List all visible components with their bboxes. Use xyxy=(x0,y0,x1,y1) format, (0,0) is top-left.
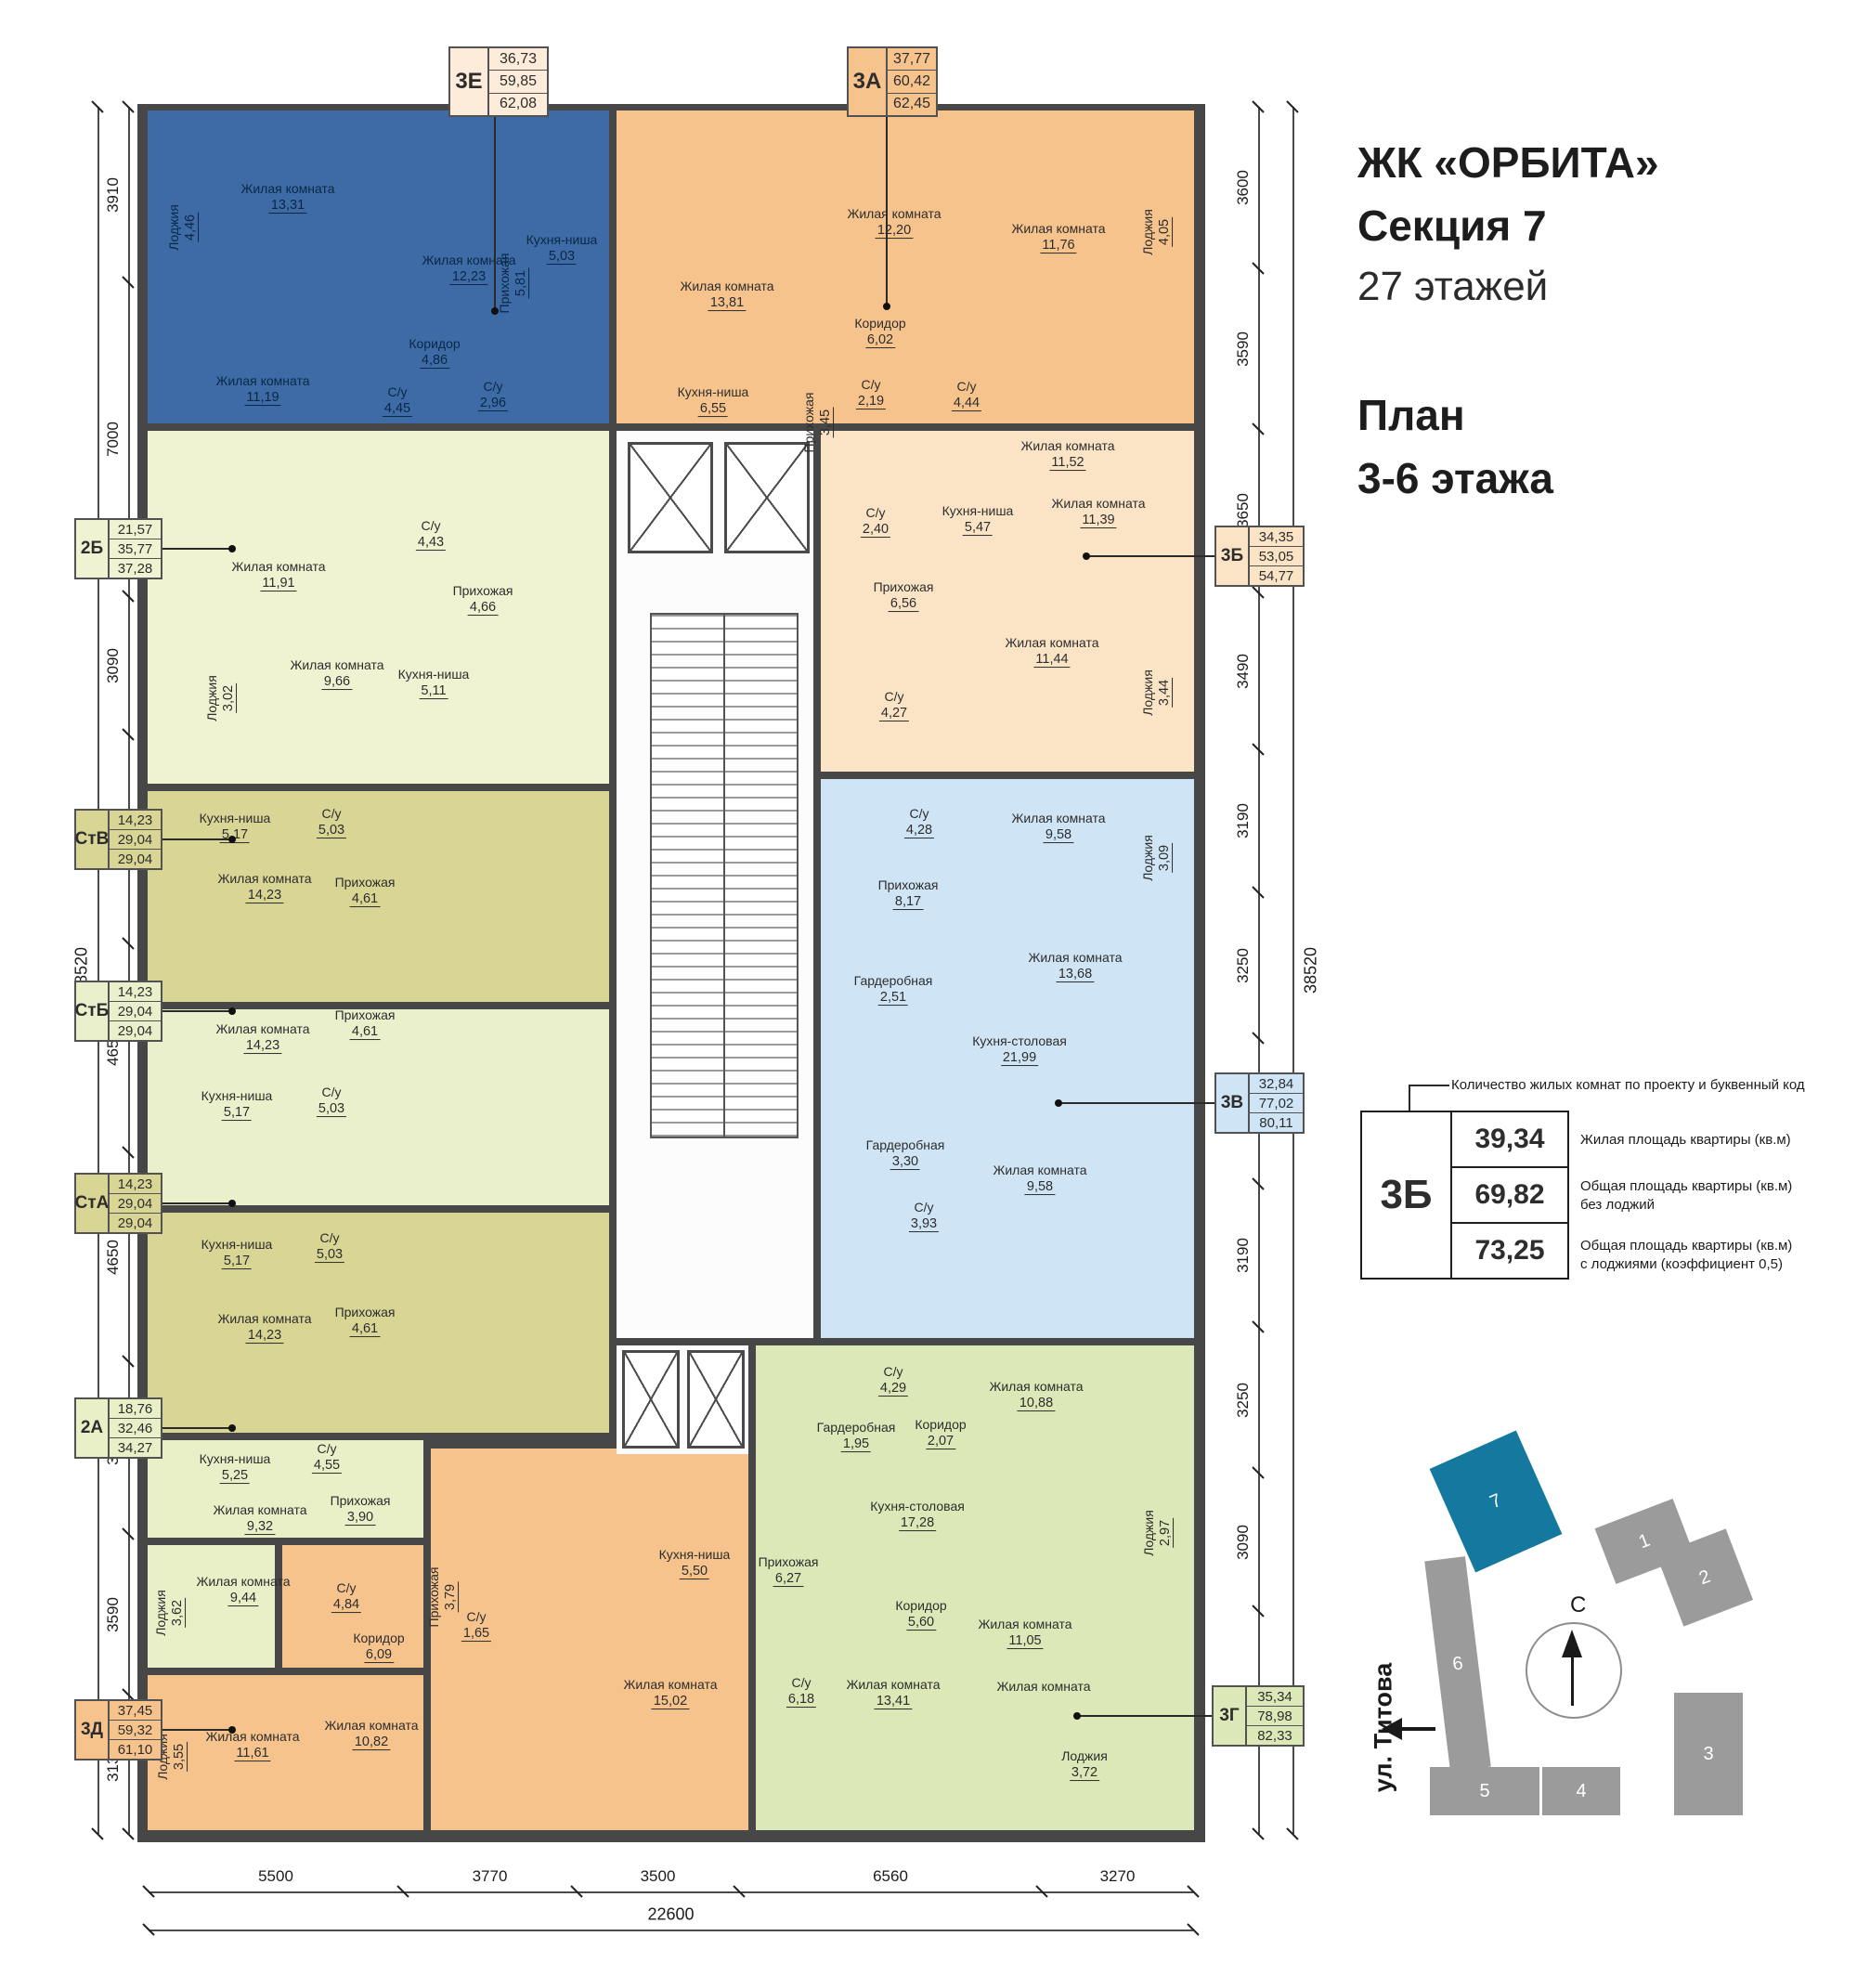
room-label: Жилая комната9,58 xyxy=(993,1163,1086,1195)
room-label: С/у4,29 xyxy=(878,1365,908,1397)
room-name: Жилая комната xyxy=(989,1380,1083,1395)
apartment-area-value: 32,84 xyxy=(1250,1074,1303,1094)
room-name: Кухня-ниша xyxy=(942,504,1014,519)
apartment-area-value: 80,11 xyxy=(1250,1113,1303,1132)
dim-label: 7000 xyxy=(104,422,123,457)
apartment-area-value: 29,04 xyxy=(110,830,161,850)
apartment-area-value: 61,10 xyxy=(110,1740,161,1759)
room-label: Коридор2,07 xyxy=(915,1418,966,1449)
room-label: С/у4,43 xyxy=(416,519,446,551)
room-area: 5,03 xyxy=(317,1101,346,1117)
street-arrow-head xyxy=(1382,1718,1402,1740)
room-area: 2,97 xyxy=(1158,1518,1174,1548)
apartment-area-value: 18,76 xyxy=(110,1399,161,1419)
apartment-area-value: 78,98 xyxy=(1247,1707,1303,1726)
room-label: Кухня-ниша5,03 xyxy=(526,233,598,265)
apartment-area-value: 37,45 xyxy=(110,1701,161,1721)
room-label: Лоджия4,05 xyxy=(1141,209,1173,255)
apartment-areas: 32,8477,0280,11 xyxy=(1250,1074,1303,1132)
room-label: С/у6,18 xyxy=(786,1676,816,1708)
room-name: Коридор xyxy=(854,317,905,331)
apartment-area-value: 62,08 xyxy=(489,94,547,115)
room-label: С/у2,96 xyxy=(478,380,508,411)
dim-label: 5500 xyxy=(258,1867,293,1886)
room-label: С/у2,40 xyxy=(861,506,890,538)
room-area: 5,03 xyxy=(315,1247,344,1263)
room-name: Жилая комната xyxy=(196,1575,290,1590)
room-label: Прихожая3,90 xyxy=(331,1494,391,1526)
street-arrow xyxy=(1400,1727,1435,1731)
room-label: С/у5,03 xyxy=(317,807,346,838)
room-name: Кухня-ниша xyxy=(398,668,470,682)
room-name: С/у xyxy=(478,380,508,395)
room-name: Жилая комната xyxy=(993,1163,1086,1178)
dim-label: 3490 xyxy=(1234,654,1253,689)
apartment-area-value: 77,02 xyxy=(1250,1094,1303,1113)
room-name: Жилая комната xyxy=(847,207,941,222)
room-name: Прихожая xyxy=(335,1306,396,1320)
legend-tag-sample: 3Б 39,34 69,82 73,25 xyxy=(1360,1111,1569,1280)
room-area: 11,91 xyxy=(260,576,296,591)
apartment-zone-3А xyxy=(617,110,1194,423)
dim-label: 3250 xyxy=(1234,1383,1253,1418)
room-name: Лоджия xyxy=(1141,209,1156,255)
room-area: 4,61 xyxy=(350,1321,380,1337)
room-area: 4,66 xyxy=(468,600,498,616)
room-name: С/у xyxy=(856,378,886,393)
room-area: 9,66 xyxy=(322,674,352,690)
apartment-zone-3Г xyxy=(756,1345,1194,1830)
dim-label: 3600 xyxy=(1234,170,1253,205)
apartment-area-value: 37,28 xyxy=(110,559,161,578)
room-label: Коридор5,60 xyxy=(895,1599,946,1631)
legend-callout: Количество жилых комнат по проекту и бук… xyxy=(1451,1077,1805,1093)
apartment-areas: 37,4559,3261,10 xyxy=(110,1701,161,1759)
apartment-areas: 21,5735,7737,28 xyxy=(110,520,161,578)
room-area: 6,09 xyxy=(364,1647,394,1663)
room-area: 5,03 xyxy=(317,823,346,838)
legend-value-total: 69,82 xyxy=(1452,1168,1567,1224)
room-name: Жилая комната xyxy=(205,1730,299,1745)
room-area: 13,68 xyxy=(1057,967,1094,982)
room-name: Лоджия xyxy=(205,675,220,721)
room-name: Жилая комната xyxy=(217,1312,311,1327)
room-label: С/у4,27 xyxy=(879,690,909,721)
room-label: Жилая комната14,23 xyxy=(215,1022,309,1054)
room-area: 3,90 xyxy=(345,1510,375,1526)
dim-label: 3590 xyxy=(104,1597,123,1632)
apartment-code: 3Д xyxy=(76,1701,110,1759)
room-label: Жилая комната9,32 xyxy=(213,1503,306,1535)
room-name: Жилая комната xyxy=(1020,439,1114,454)
room-label: Жилая комната10,82 xyxy=(324,1719,418,1750)
north-arrow-head xyxy=(1562,1630,1582,1657)
room-label: С/у2,19 xyxy=(856,378,886,409)
room-name: Жилая комната xyxy=(1005,636,1098,651)
room-area: 3,79 xyxy=(443,1582,459,1612)
legend-callout-line xyxy=(1409,1085,1410,1111)
tag-leader-3В xyxy=(1058,1102,1214,1104)
dim-label: 3500 xyxy=(641,1867,676,1886)
room-label: Кухня-ниша5,17 xyxy=(201,1238,273,1269)
room-label: Кухня-ниша5,50 xyxy=(659,1548,731,1579)
dim-total-line-right xyxy=(1292,107,1294,1834)
room-label: Гардеробная1,95 xyxy=(817,1421,896,1452)
room-area: 9,58 xyxy=(1025,1179,1055,1195)
room-label: С/у4,55 xyxy=(312,1442,342,1474)
apartment-area-value: 14,23 xyxy=(110,982,161,1002)
room-name: С/у xyxy=(383,385,412,400)
tag-leader-2А xyxy=(162,1427,232,1429)
room-label: Жилая комната11,44 xyxy=(1005,636,1098,668)
north-arrow xyxy=(1571,1652,1574,1706)
dim-label: 3650 xyxy=(1234,493,1253,528)
room-name: Лоджия xyxy=(154,1590,169,1636)
room-name: Прихожая xyxy=(759,1555,819,1570)
room-area: 17,28 xyxy=(899,1515,936,1531)
dim-total-label: 38520 xyxy=(1302,947,1321,994)
tag-leader-dot xyxy=(1083,552,1090,560)
room-area: 3,30 xyxy=(890,1154,920,1170)
room-name: Жилая комната xyxy=(680,279,773,294)
room-label: Жилая комната11,91 xyxy=(231,560,325,591)
apartment-zone-2Б xyxy=(148,431,609,784)
room-name: Жилая комната xyxy=(1051,497,1145,512)
apartment-areas: 18,7632,4634,27 xyxy=(110,1399,161,1457)
room-label: Лоджия2,97 xyxy=(1142,1510,1174,1556)
room-label: С/у1,65 xyxy=(461,1610,491,1642)
room-name: Лоджия xyxy=(1142,1510,1157,1556)
elevator-shaft-icon xyxy=(687,1350,745,1449)
tag-leader-dot xyxy=(1073,1712,1081,1720)
room-area: 1,65 xyxy=(461,1626,491,1642)
apartment-area-value: 32,46 xyxy=(110,1419,161,1438)
room-area: 11,05 xyxy=(1006,1633,1043,1649)
apartment-area-value: 29,04 xyxy=(110,1214,161,1232)
room-label: Прихожая3,45 xyxy=(802,393,834,453)
dim-label: 3590 xyxy=(1234,331,1253,367)
room-label: Гардеробная2,51 xyxy=(854,974,933,1006)
apartment-area-value: 29,04 xyxy=(110,1002,161,1021)
room-area: 11,61 xyxy=(234,1746,270,1761)
room-label: Прихожая4,61 xyxy=(335,1008,396,1040)
room-area: 14,23 xyxy=(246,888,283,903)
room-area: 11,39 xyxy=(1080,513,1116,528)
room-area: 4,61 xyxy=(350,1024,380,1040)
room-area: 1,95 xyxy=(841,1436,871,1452)
room-area: 5,25 xyxy=(220,1468,250,1484)
room-area: 4,43 xyxy=(416,535,446,551)
room-name: Жилая комната xyxy=(846,1678,940,1693)
room-name: С/у xyxy=(878,1365,908,1380)
room-label: С/у5,03 xyxy=(315,1231,344,1263)
room-area: 6,27 xyxy=(773,1571,803,1587)
room-name: Жилая комната xyxy=(231,560,325,575)
room-name: Жилая комната xyxy=(324,1719,418,1734)
room-label: Жилая комната9,58 xyxy=(1011,812,1105,843)
room-name: Кухня-ниша xyxy=(678,385,749,400)
elevator-shaft-icon xyxy=(622,1350,680,1449)
room-name: Прихожая xyxy=(802,393,817,453)
room-name: С/у xyxy=(904,807,934,822)
tag-leader-dot xyxy=(228,545,236,552)
room-label: Кухня-столовая17,28 xyxy=(870,1500,965,1531)
room-name: Кухня-ниша xyxy=(201,1238,273,1253)
apartment-areas: 14,2329,0429,04 xyxy=(110,811,161,868)
apartment-area-value: 59,85 xyxy=(489,71,547,93)
room-label: Лоджия3,62 xyxy=(154,1590,186,1636)
room-name: Прихожая xyxy=(427,1567,442,1628)
room-area: 4,44 xyxy=(952,396,981,411)
room-name: Коридор xyxy=(915,1418,966,1433)
tag-leader-dot xyxy=(228,1424,236,1432)
room-name: С/у xyxy=(331,1581,361,1596)
room-area: 12,20 xyxy=(876,223,913,239)
apartment-area-value: 36,73 xyxy=(489,48,547,71)
room-name: Жилая комната xyxy=(215,1022,309,1037)
room-area: 11,76 xyxy=(1040,238,1076,253)
apartment-tag-2А: 2А18,7632,4634,27 xyxy=(74,1397,162,1459)
dim-chain-right xyxy=(1258,107,1260,1834)
room-name: Гардеробная xyxy=(866,1138,945,1153)
room-name: Лоджия xyxy=(1141,669,1156,716)
room-name: С/у xyxy=(312,1442,342,1457)
room-label: Кухня-столовая21,99 xyxy=(972,1034,1067,1066)
apartment-code: 3В xyxy=(1216,1074,1250,1132)
apartment-area-value: 37,77 xyxy=(888,48,936,71)
tag-leader-2Б xyxy=(162,548,232,550)
apartment-area-value: 14,23 xyxy=(110,811,161,830)
room-area: 11,19 xyxy=(244,390,280,406)
room-label: Прихожая6,56 xyxy=(874,580,934,612)
room-name: Коридор xyxy=(353,1631,404,1646)
room-name: С/у xyxy=(317,1085,346,1100)
room-name: Гардеробная xyxy=(854,974,933,989)
room-name: Жилая комната xyxy=(978,1618,1071,1632)
room-area: 12,23 xyxy=(450,269,487,285)
room-area: 13,41 xyxy=(875,1694,912,1709)
legend-value-total-loggia: 73,25 xyxy=(1452,1224,1567,1278)
room-area: 6,55 xyxy=(698,401,728,417)
room-label: Жилая комната13,81 xyxy=(680,279,773,311)
room-area: 14,23 xyxy=(246,1328,283,1344)
apartment-code: 2А xyxy=(76,1399,110,1457)
room-label: Лоджия3,44 xyxy=(1141,669,1173,716)
room-area: 3,44 xyxy=(1157,678,1173,708)
room-area: 4,86 xyxy=(420,353,449,369)
room-area: 9,32 xyxy=(245,1519,275,1535)
room-name: Кухня-столовая xyxy=(870,1500,965,1514)
room-name: Жилая комната xyxy=(1011,222,1105,237)
dim-label: 3190 xyxy=(1234,803,1253,838)
room-area: 2,40 xyxy=(861,522,890,538)
apartment-area-value: 53,05 xyxy=(1250,547,1303,566)
dim-total-line-left xyxy=(97,107,99,1834)
room-area: 6,56 xyxy=(889,596,918,612)
apartment-tag-3Д: 3Д37,4559,3261,10 xyxy=(74,1699,162,1761)
room-area: 5,03 xyxy=(547,249,577,265)
elevator-shaft-icon xyxy=(724,442,810,553)
apartment-code: СтВ xyxy=(76,811,110,868)
dim-label: 3190 xyxy=(1234,1238,1253,1273)
room-label: Жилая комната9,66 xyxy=(290,658,383,690)
room-area: 4,45 xyxy=(383,401,412,417)
room-name: Лоджия xyxy=(1141,835,1156,881)
room-name: С/у xyxy=(461,1610,491,1625)
apartment-areas: 14,2329,0429,04 xyxy=(110,1175,161,1232)
room-name: С/у xyxy=(317,807,346,822)
tag-leader-dot xyxy=(883,303,890,310)
tag-leader-3Г xyxy=(1077,1715,1212,1717)
room-area: 14,23 xyxy=(244,1038,281,1054)
apartment-areas: 34,3553,0554,77 xyxy=(1250,527,1303,585)
room-name: Прихожая xyxy=(453,584,513,599)
apartment-area-value: 35,77 xyxy=(110,539,161,559)
room-label: Жилая комната11,76 xyxy=(1011,222,1105,253)
room-area: 4,55 xyxy=(312,1458,342,1474)
page-title-floors: 27 этажей xyxy=(1357,264,1548,310)
room-area: 4,61 xyxy=(350,891,380,907)
room-label: Коридор6,02 xyxy=(854,317,905,348)
room-area: 2,51 xyxy=(878,990,908,1006)
room-area: 2,96 xyxy=(478,396,508,411)
tag-leader-dot xyxy=(491,307,499,315)
room-area: 4,28 xyxy=(904,823,934,838)
room-area: 5,81 xyxy=(513,268,529,298)
room-name: Прихожая xyxy=(878,878,939,893)
apartment-area-value: 82,33 xyxy=(1247,1726,1303,1745)
room-name: Кухня-ниша xyxy=(200,1452,271,1467)
legend-value-living: 39,34 xyxy=(1452,1112,1567,1168)
room-name: Жилая комната xyxy=(290,658,383,673)
apartment-code: 3Б xyxy=(1216,527,1250,585)
page-title-section: Секция 7 xyxy=(1357,201,1547,251)
room-name: Коридор xyxy=(895,1599,946,1614)
room-area: 4,29 xyxy=(878,1381,908,1397)
room-name: Кухня-ниша xyxy=(201,1089,273,1104)
room-area: 11,44 xyxy=(1033,652,1070,668)
room-name: Прихожая xyxy=(335,1008,396,1023)
apartment-area-value: 59,32 xyxy=(110,1721,161,1740)
dim-label: 3910 xyxy=(104,177,123,213)
dim-chain-bottom xyxy=(149,1891,1193,1893)
page-title-project: ЖК «ОРБИТА» xyxy=(1357,137,1659,188)
dim-label: 6560 xyxy=(873,1867,908,1886)
legend-code: 3Б xyxy=(1362,1112,1452,1278)
room-area: 4,84 xyxy=(331,1597,361,1613)
site-building-6: 6 xyxy=(1424,1556,1490,1772)
room-name: Прихожая xyxy=(498,253,513,314)
apartment-area-value: 29,04 xyxy=(110,1194,161,1214)
plan-label: План xyxy=(1357,390,1465,440)
tag-leader-СтБ xyxy=(162,1010,232,1012)
legend-desc-total: Общая площадь квартиры (кв.м) без лоджий xyxy=(1580,1177,1792,1214)
room-area: 4,46 xyxy=(183,213,199,242)
room-area: 5,17 xyxy=(222,1105,252,1121)
tag-leader-СтВ xyxy=(162,838,232,840)
room-area: 21,99 xyxy=(1001,1050,1038,1066)
apartment-areas: 14,2329,0429,04 xyxy=(110,982,161,1040)
apartment-area-value: 29,04 xyxy=(110,1021,161,1040)
apartment-area-value: 14,23 xyxy=(110,1175,161,1194)
apartment-code: СтБ xyxy=(76,982,110,1040)
legend-callout-line xyxy=(1409,1085,1449,1086)
apartment-area-value: 21,57 xyxy=(110,520,161,539)
apartment-area-value: 34,35 xyxy=(1250,527,1303,547)
room-label: Кухня-ниша5,17 xyxy=(201,1089,273,1121)
apartment-tag-3Е: 3Е36,7359,8562,08 xyxy=(448,46,549,117)
room-name: Жилая комната xyxy=(215,374,309,389)
room-area: 9,44 xyxy=(228,1591,258,1606)
apartment-code: 3Е xyxy=(450,48,489,115)
site-building-4: 4 xyxy=(1542,1767,1620,1815)
plan-floors-label: 3-6 этажа xyxy=(1357,453,1553,503)
room-label: С/у4,45 xyxy=(383,385,412,417)
room-area: 6,02 xyxy=(865,332,895,348)
room-area: 2,19 xyxy=(856,394,886,409)
room-name: С/у xyxy=(909,1201,939,1215)
apartment-tag-3Г: 3Г35,3478,9882,33 xyxy=(1212,1685,1305,1747)
dim-label: 3270 xyxy=(1100,1867,1136,1886)
room-name: Кухня-столовая xyxy=(972,1034,1067,1049)
site-building-7: 7 xyxy=(1430,1431,1563,1573)
room-area: 2,07 xyxy=(926,1434,955,1449)
apartment-areas: 35,3478,9882,33 xyxy=(1247,1687,1303,1745)
room-label: Лоджия3,02 xyxy=(205,675,237,721)
room-label: Жилая комната15,02 xyxy=(623,1678,717,1709)
apartment-tag-3В: 3В32,8477,0280,11 xyxy=(1214,1072,1305,1134)
room-area: 5,60 xyxy=(906,1615,936,1631)
room-name: Жилая комната xyxy=(213,1503,306,1518)
room-label: Жилая комната11,52 xyxy=(1020,439,1114,471)
room-label: Жилая комната13,68 xyxy=(1028,951,1122,982)
apartment-tag-СтА: СтА14,2329,0429,04 xyxy=(74,1173,162,1234)
room-label: Жилая комната11,39 xyxy=(1051,497,1145,528)
room-name: С/у xyxy=(786,1676,816,1691)
room-label: Лоджия3,09 xyxy=(1141,835,1173,881)
room-name: Жилая комната xyxy=(1011,812,1105,826)
room-label: С/у4,84 xyxy=(331,1581,361,1613)
room-area: 5,50 xyxy=(680,1564,709,1579)
room-label: Гардеробная3,30 xyxy=(866,1138,945,1170)
room-name: Жилая комната xyxy=(1028,951,1122,966)
tag-leader-dot xyxy=(228,1200,236,1207)
room-area: 3,09 xyxy=(1157,843,1173,873)
room-area: 3,93 xyxy=(909,1216,939,1232)
tag-leader-dot xyxy=(228,1007,236,1015)
room-label: Прихожая4,61 xyxy=(335,876,396,907)
room-label: Жилая комната xyxy=(996,1680,1090,1695)
room-name: Прихожая xyxy=(331,1494,391,1509)
tag-leader-3А xyxy=(886,117,888,306)
room-label: С/у4,28 xyxy=(904,807,934,838)
room-area: 6,18 xyxy=(786,1692,816,1708)
room-name: Кухня-ниша xyxy=(200,812,271,826)
room-area: 5,47 xyxy=(963,520,993,536)
apartment-code: СтА xyxy=(76,1175,110,1232)
room-name: С/у xyxy=(879,690,909,705)
dim-label: 3090 xyxy=(1234,1525,1253,1560)
room-name: Коридор xyxy=(409,337,460,352)
apartment-code: 3Г xyxy=(1214,1687,1247,1745)
room-name: С/у xyxy=(952,380,981,395)
room-area: 13,81 xyxy=(708,295,746,311)
tag-leader-3Б xyxy=(1086,555,1214,557)
room-name: Жилая комната xyxy=(240,182,334,197)
dim-label: 4650 xyxy=(104,1240,123,1275)
room-area: 4,27 xyxy=(879,706,909,721)
room-area: 3,62 xyxy=(170,1598,186,1628)
